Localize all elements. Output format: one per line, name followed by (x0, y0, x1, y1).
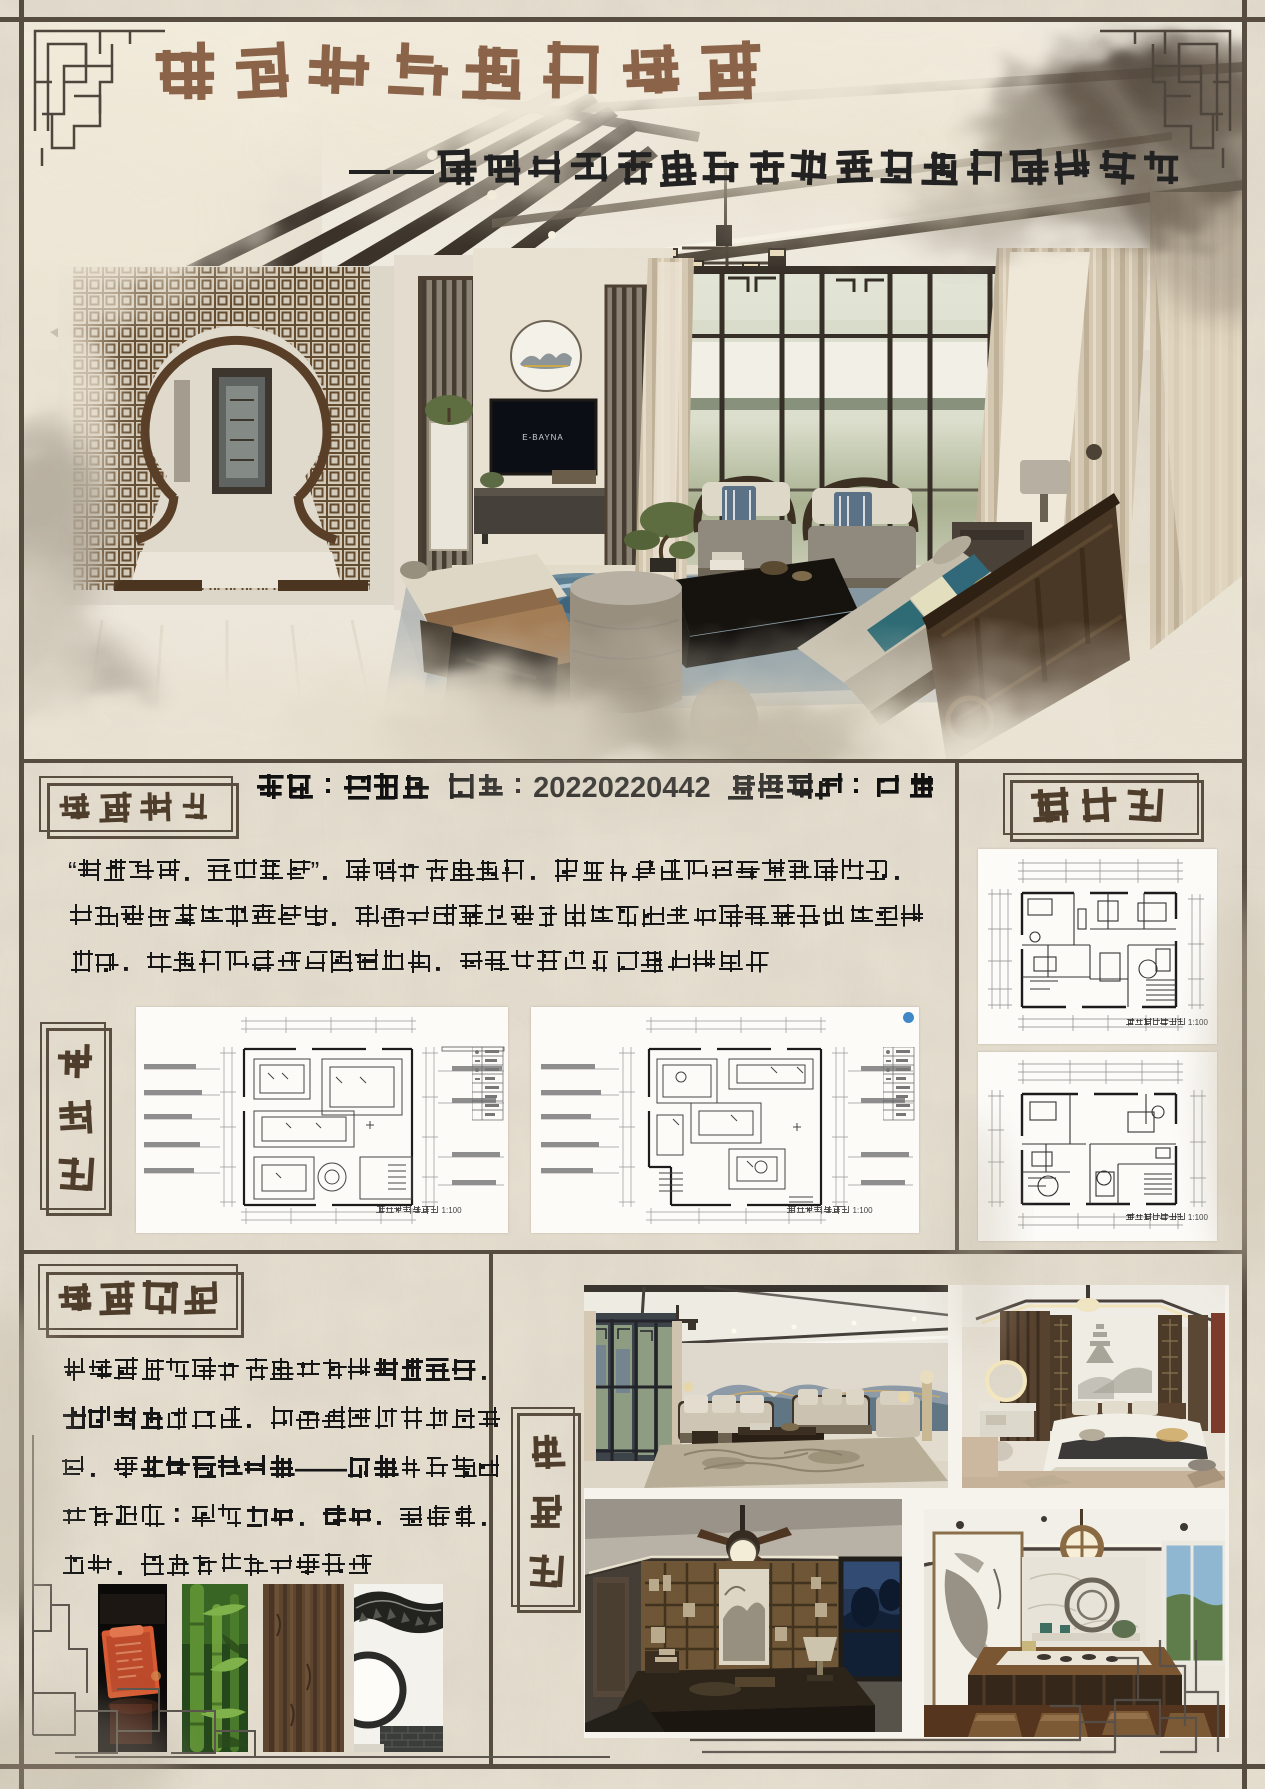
svg-text:E-BAYNA: E-BAYNA (522, 433, 564, 442)
